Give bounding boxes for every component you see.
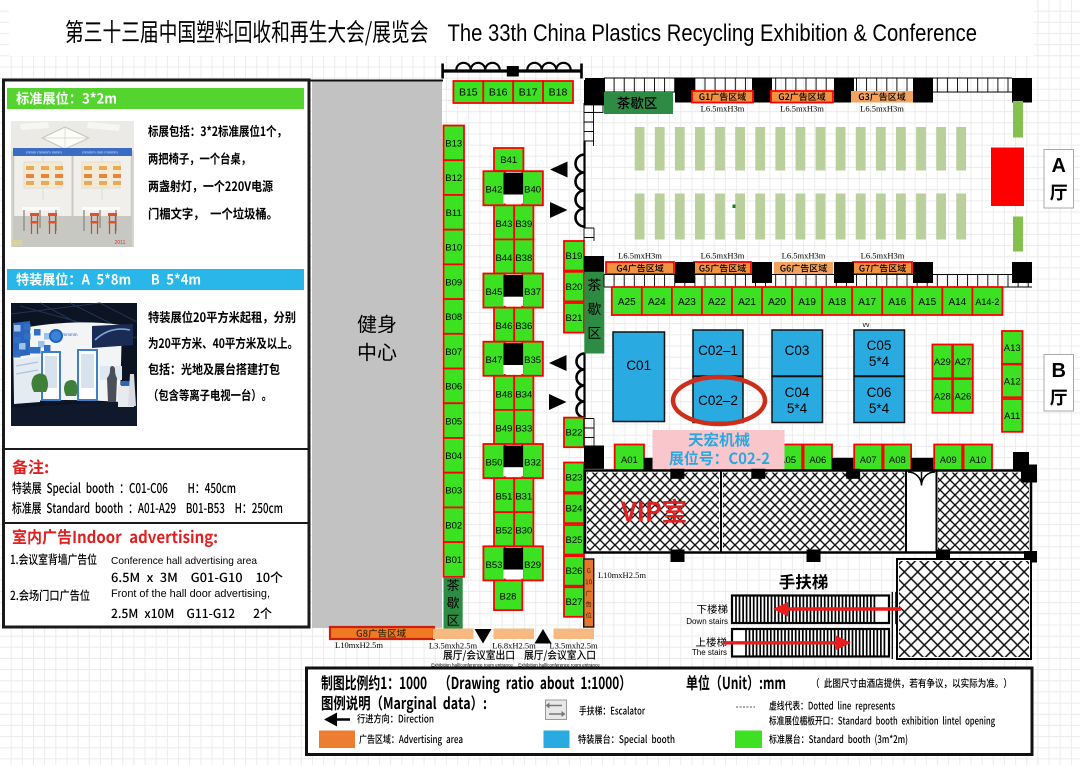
svg-text:B11: B11 [446,208,462,219]
svg-text:B15: B15 [459,87,478,99]
svg-text:B24: B24 [566,504,583,515]
svg-text:A10: A10 [969,455,986,466]
svg-text:B31: B31 [515,492,532,503]
svg-text:A11: A11 [1004,411,1020,422]
svg-text:A17: A17 [858,297,876,308]
svg-text:B49: B49 [496,423,513,434]
svg-text:Down stairs: Down stairs [686,617,728,626]
svg-text:B28: B28 [500,591,517,602]
svg-text:B34: B34 [515,389,532,400]
svg-text:L6.5mxH3m: L6.5mxH3m [780,104,824,114]
svg-text:C06: C06 [867,385,892,400]
svg-text:B05: B05 [445,416,462,427]
svg-text:B32: B32 [524,458,541,469]
svg-text:B08: B08 [445,312,462,323]
svg-text:Conference hall advertising ar: Conference hall advertising area [111,555,257,567]
svg-text:B44: B44 [496,253,513,264]
svg-text:B42: B42 [486,185,503,196]
svg-text:A09: A09 [940,455,957,466]
svg-text:B27: B27 [566,597,583,608]
svg-text:A08: A08 [889,455,906,466]
svg-text:mmm mmmm mmm: mmm mmmm mmm [26,150,62,155]
svg-text:B17: B17 [519,87,538,99]
svg-text:A20: A20 [768,297,786,308]
svg-text:mmmm mm mmmm: mmmm mm mmmm [82,150,118,155]
svg-text:A18: A18 [828,297,846,308]
svg-text:B43: B43 [496,219,513,230]
svg-text:A25: A25 [618,297,636,308]
svg-text:L3.5mxh2.5m: L3.5mxh2.5m [429,641,478,651]
svg-text:L6.5mxH3m: L6.5mxH3m [701,104,745,114]
svg-text:B41: B41 [500,155,517,166]
svg-text:B06: B06 [445,382,462,393]
svg-text:A21: A21 [738,297,756,308]
svg-text:B35: B35 [524,355,541,366]
svg-text:B29: B29 [524,560,541,571]
svg-text:B: B [1051,360,1065,382]
svg-text:The stairs: The stairs [692,648,727,657]
svg-text:C02–1: C02–1 [698,343,738,358]
svg-text:A15: A15 [918,297,936,308]
svg-text:2011: 2011 [115,240,126,246]
svg-text:A28: A28 [934,392,951,403]
svg-text:5*4: 5*4 [869,354,890,369]
svg-text:B45: B45 [486,287,503,298]
svg-text:vv: vv [863,322,871,329]
svg-text:B30: B30 [515,526,532,537]
svg-text:B50: B50 [486,458,503,469]
svg-text:L6.5mxH3m: L6.5mxH3m [618,251,662,261]
svg-text:B18: B18 [549,87,568,99]
svg-text:5*4: 5*4 [787,401,808,416]
svg-text:A16: A16 [888,297,906,308]
svg-text:B10: B10 [445,243,462,254]
svg-text:B36: B36 [515,321,532,332]
svg-text:L6.5mxH3m: L6.5mxH3m [861,251,905,261]
svg-text:B46: B46 [496,321,513,332]
svg-text:B19: B19 [566,251,583,262]
svg-text:A12: A12 [1004,377,1021,388]
svg-text:B26: B26 [566,566,583,577]
svg-text:L6.8xH2.5m: L6.8xH2.5m [492,641,536,651]
svg-text:A: A [1051,155,1065,177]
svg-text:B12: B12 [445,173,462,184]
svg-text:B23: B23 [566,473,583,484]
svg-text:B02: B02 [445,520,462,531]
svg-text:A14: A14 [948,297,966,308]
svg-text:L3.5mxh2.5m: L3.5mxh2.5m [549,641,598,651]
svg-text:B09: B09 [445,277,462,288]
svg-text:C02–2: C02–2 [698,393,738,408]
svg-text:L6.5mxH3m: L6.5mxH3m [860,104,904,114]
svg-text:B25: B25 [566,535,583,546]
svg-text:B01: B01 [445,555,462,566]
svg-text:A23: A23 [678,297,696,308]
svg-text:B52: B52 [496,526,513,537]
svg-text:mmmm: mmmm [63,332,78,337]
svg-text:C03: C03 [785,343,810,358]
svg-text:L10mxH2.5m: L10mxH2.5m [335,640,383,650]
svg-text:L6.5mxH3m: L6.5mxH3m [782,251,826,261]
svg-text:B37: B37 [524,287,541,298]
svg-text:B40: B40 [524,185,541,196]
svg-text:B39: B39 [515,219,532,230]
svg-text:B07: B07 [445,347,462,358]
svg-text:Front of the hall door adverti: Front of the hall door advertising, [111,588,270,600]
svg-text:B51: B51 [496,492,513,503]
svg-text:A26: A26 [954,392,971,403]
svg-text:B21: B21 [566,313,583,324]
svg-text:A22: A22 [708,297,726,308]
svg-text:C05: C05 [867,338,892,353]
svg-text:5*4: 5*4 [869,401,890,416]
svg-text:A29: A29 [934,357,951,368]
svg-text:B03: B03 [445,486,462,497]
svg-text:C04: C04 [785,385,810,400]
svg-text:The 33th China Plastics Recycl: The 33th China Plastics Recycling Exhibi… [448,20,978,47]
svg-text:C01: C01 [626,358,651,373]
svg-text:A01: A01 [621,455,638,466]
svg-text:B38: B38 [515,253,532,264]
svg-text:B47: B47 [486,355,503,366]
svg-text:B48: B48 [496,389,513,400]
svg-text:L10mxH2.5m: L10mxH2.5m [598,570,646,580]
svg-text:B33: B33 [515,423,532,434]
svg-text:A19: A19 [798,297,816,308]
svg-text:A27: A27 [954,357,971,368]
svg-text:L6.5mxH3m: L6.5mxH3m [701,251,745,261]
svg-text:B20: B20 [566,282,583,293]
svg-text:A24: A24 [648,297,666,308]
svg-text:B16: B16 [489,87,508,99]
svg-text:B22: B22 [566,428,583,439]
svg-text:A07: A07 [860,455,877,466]
svg-text:B13: B13 [445,139,462,150]
svg-text:A14-2: A14-2 [975,297,999,307]
svg-text:B53: B53 [486,560,503,571]
svg-text:A13: A13 [1004,343,1021,354]
svg-text:B04: B04 [445,451,462,462]
svg-text:A06: A06 [809,455,826,466]
